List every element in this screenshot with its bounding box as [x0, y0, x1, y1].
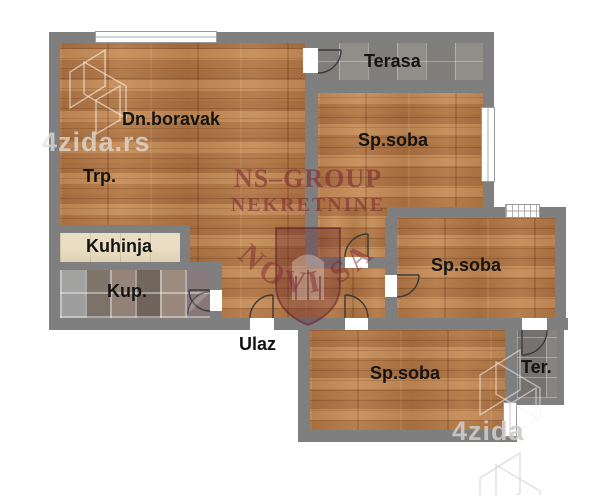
- door-gap-bedroom1: [345, 257, 368, 268]
- floor-plan: NOVI SAD Dn.boravak Trp. Kuhinja Kup. Ul…: [0, 0, 614, 495]
- wall-outer-left: [49, 32, 60, 330]
- wall-bedroom3-left: [298, 330, 310, 442]
- floor-hallway: [305, 268, 397, 318]
- room-label-entrance: Ulaz: [239, 334, 276, 355]
- brand-cube-logo-bottom-white: [480, 453, 540, 495]
- room-label-terrace-small: Ter.: [521, 357, 552, 378]
- room-label-kitchen: Kuhinja: [86, 236, 152, 257]
- room-label-living: Dn.boravak: [122, 109, 220, 130]
- window-bedroom3-right: [503, 402, 517, 437]
- wall-bottom-band: [49, 318, 568, 330]
- wall-outer-right-lower: [555, 207, 566, 330]
- door-gap-bedroom3: [345, 318, 368, 330]
- wall-bedroom3-bottom: [298, 430, 517, 442]
- room-label-terrace-top: Terasa: [364, 51, 421, 72]
- wall-terrace-small-bottom: [511, 398, 564, 405]
- door-gap-entrance: [250, 318, 274, 330]
- door-gap-terrace-small: [522, 318, 547, 330]
- window-bedroom2-top: [505, 204, 540, 218]
- wall-kitchen-top: [60, 225, 190, 233]
- wall-terrace-bedroom1-divider: [305, 80, 494, 93]
- window-living-top: [95, 31, 217, 43]
- room-label-bedroom2: Sp.soba: [431, 255, 501, 276]
- door-gap-bathroom: [210, 290, 222, 311]
- window-bedroom1-right: [481, 107, 495, 182]
- wall-terrace-small-right: [557, 330, 564, 405]
- wall-living-right: [305, 43, 318, 268]
- room-label-bedroom3: Sp.soba: [370, 363, 440, 384]
- wall-bedroom2-left: [385, 218, 397, 330]
- wall-bath-top: [60, 262, 222, 270]
- door-gap-bedroom2: [385, 275, 397, 297]
- room-label-bathroom: Kup.: [107, 281, 147, 302]
- room-label-dining: Trp.: [83, 166, 116, 187]
- room-label-bedroom1: Sp.soba: [358, 130, 428, 151]
- door-gap-terrace-top: [303, 48, 318, 73]
